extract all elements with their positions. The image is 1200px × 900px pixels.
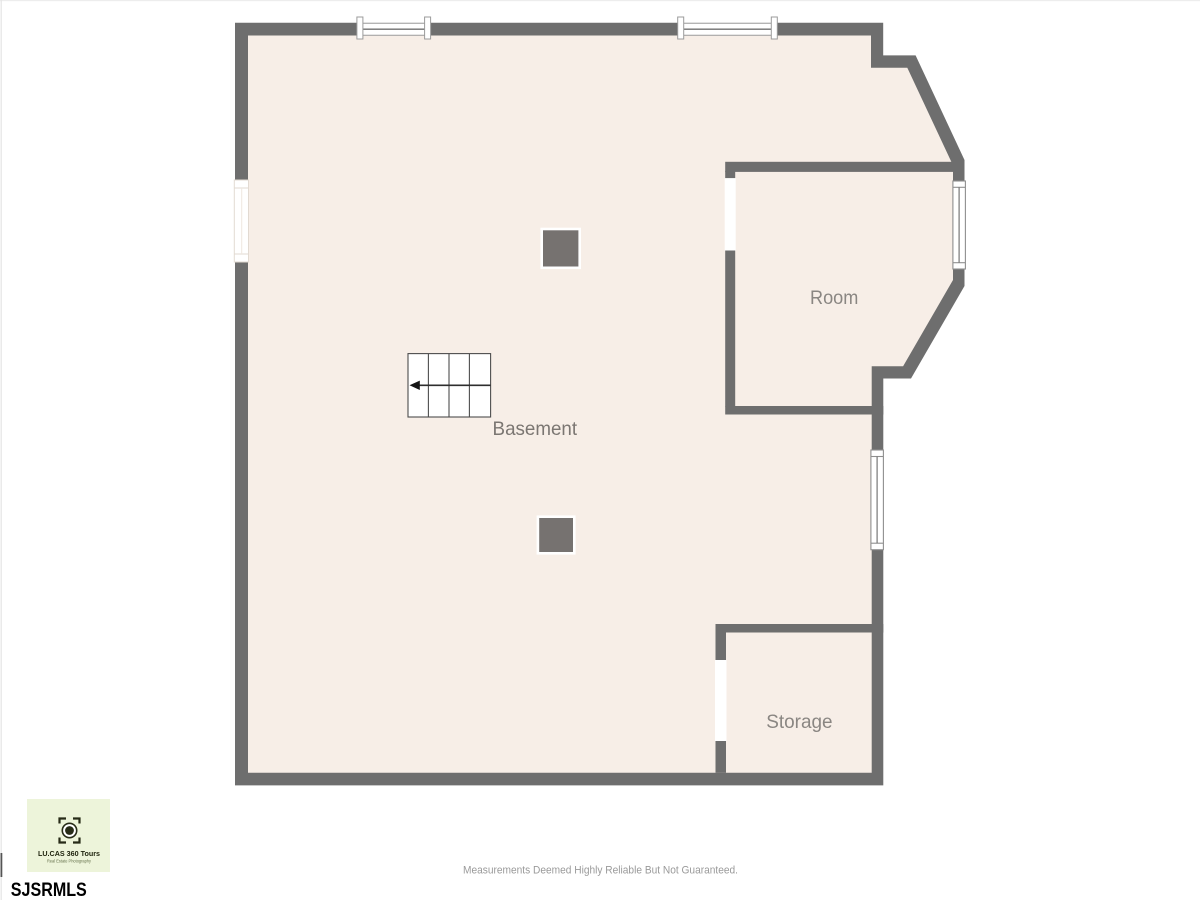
svg-text:LU.CAS 360 Tours: LU.CAS 360 Tours	[38, 849, 100, 858]
svg-text:Room: Room	[810, 287, 858, 309]
svg-text:Real Estate Photography: Real Estate Photography	[47, 859, 92, 864]
svg-text:Storage: Storage	[766, 711, 832, 733]
svg-text:Basement: Basement	[493, 418, 578, 440]
svg-text:SJSRMLS: SJSRMLS	[11, 880, 87, 900]
svg-text:Measurements Deemed Highly Rel: Measurements Deemed Highly Reliable But …	[463, 864, 738, 876]
